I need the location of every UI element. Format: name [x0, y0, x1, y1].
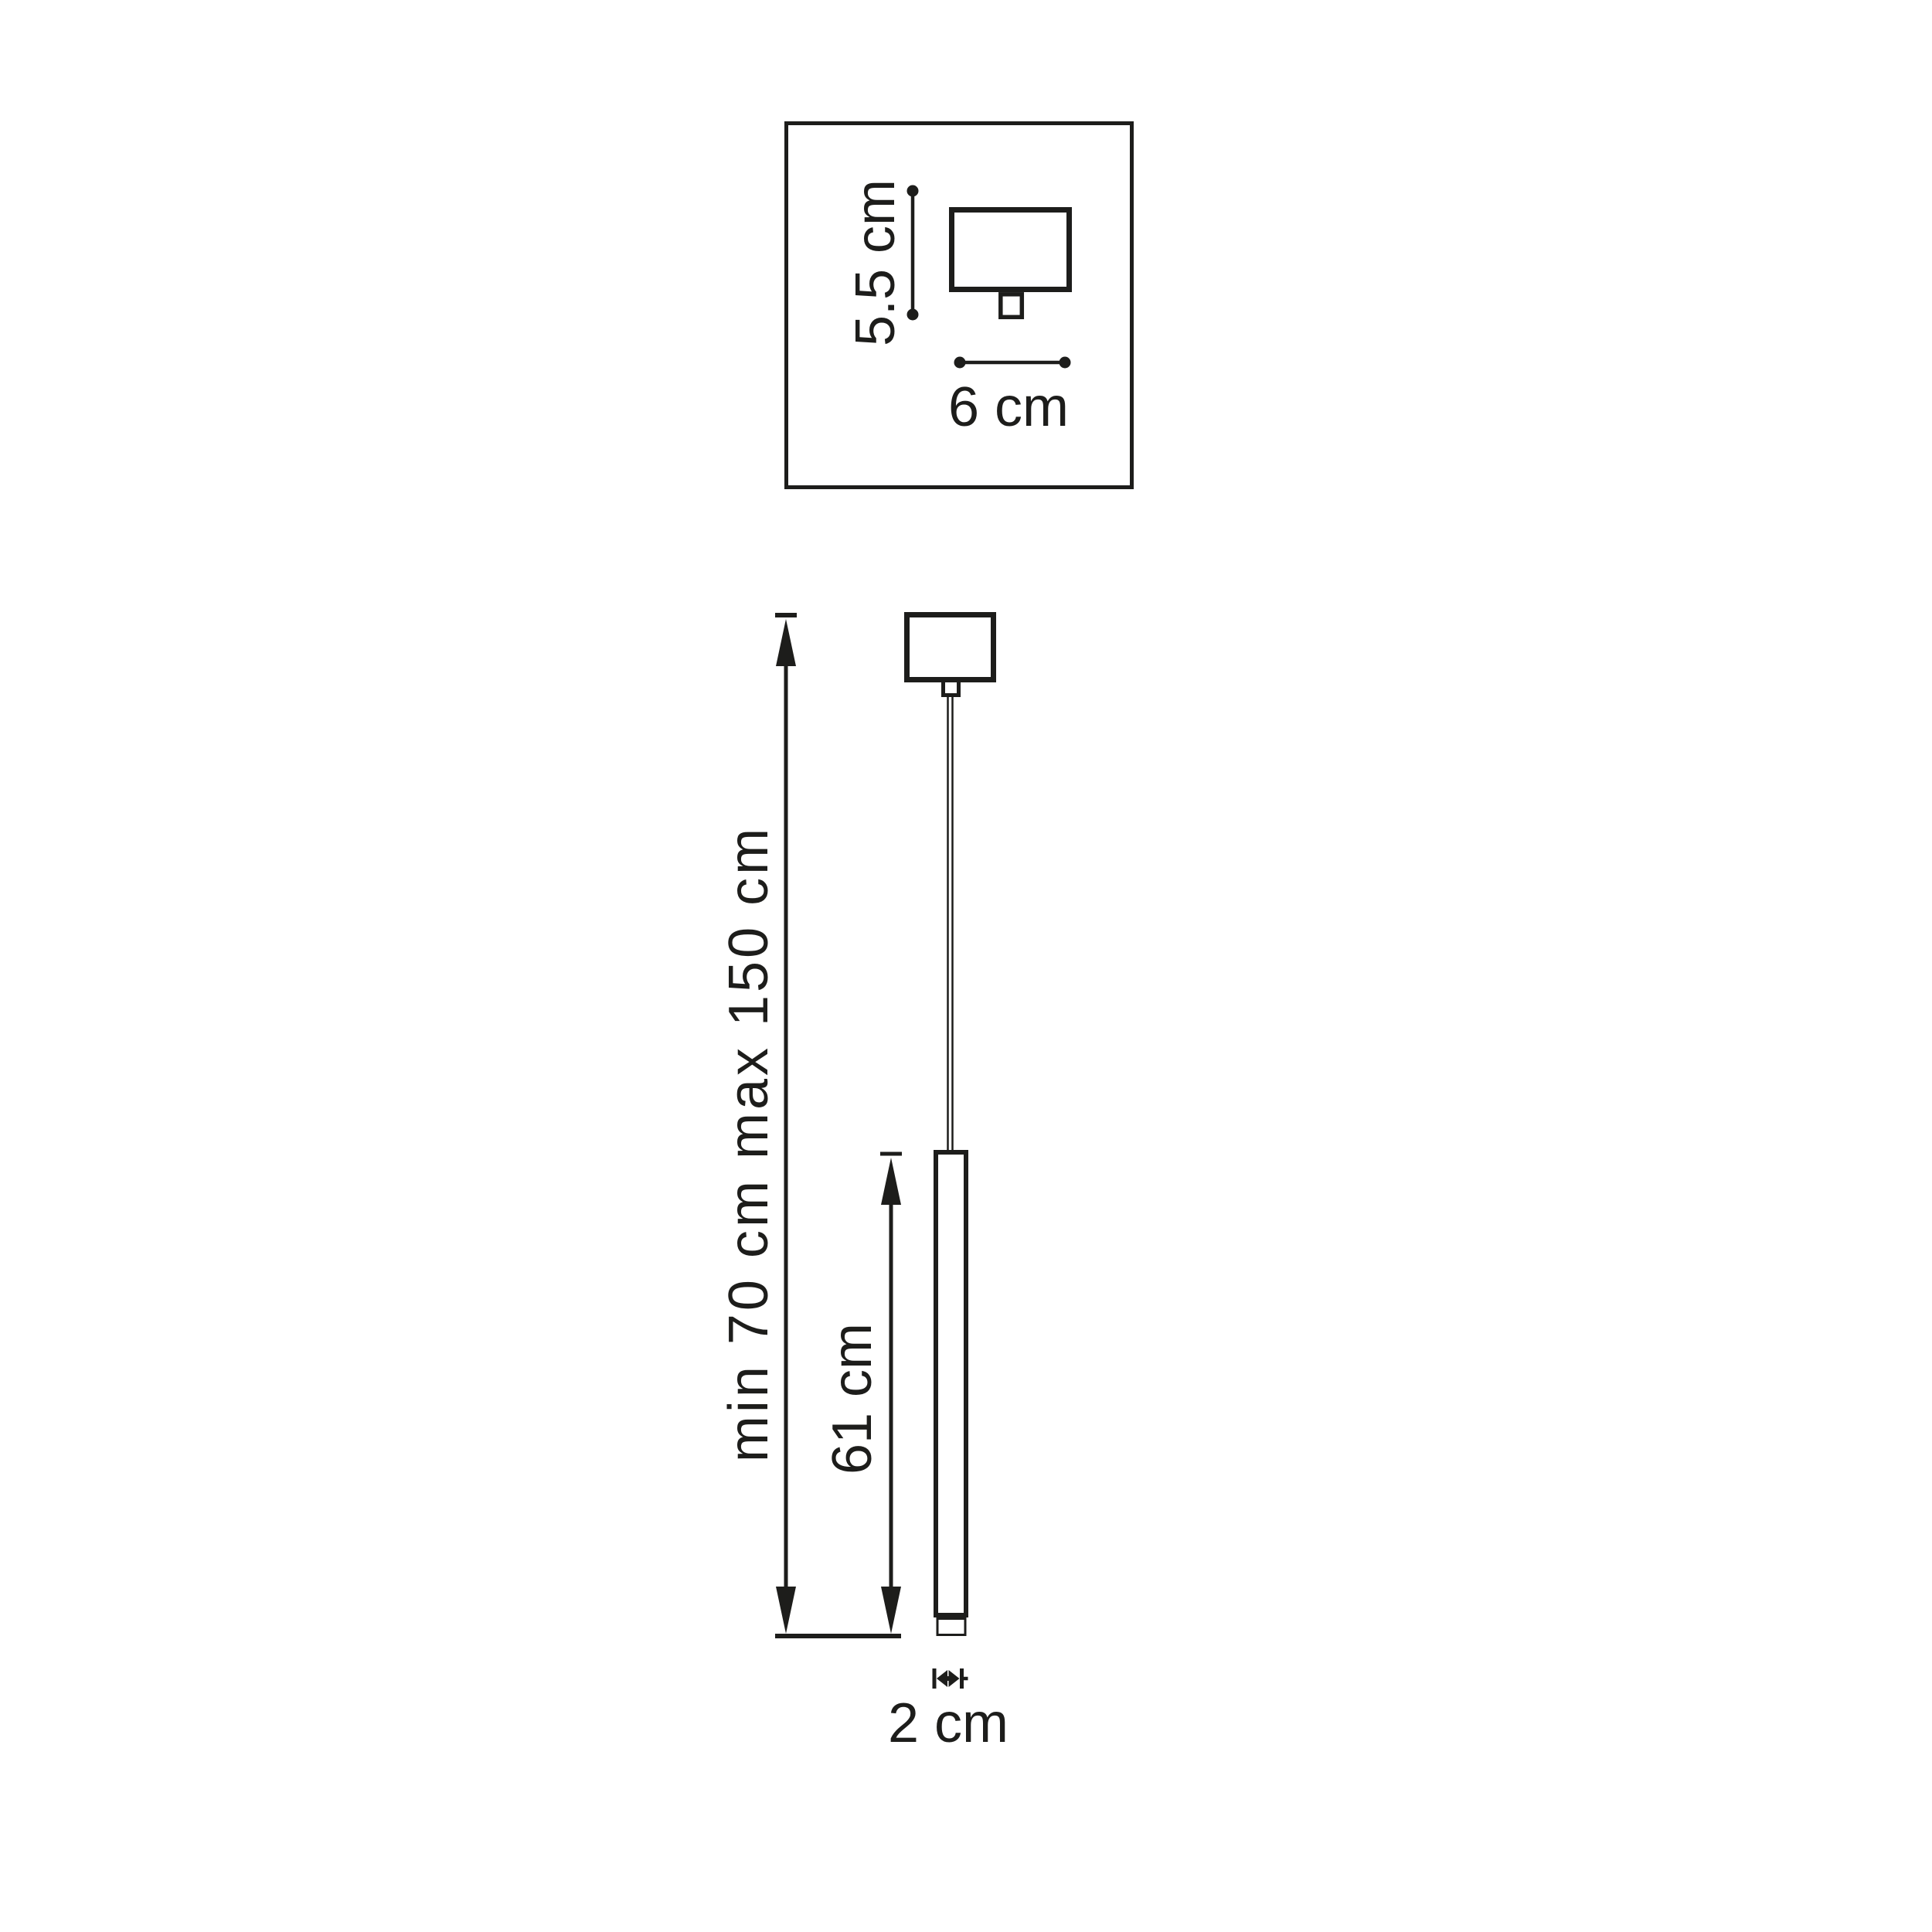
lamp-tube-outline: [936, 1152, 966, 1615]
dimension-endpoint-dot: [907, 185, 919, 197]
lamp-tube-end-cap: [937, 1619, 965, 1635]
tube-length-dimension-label: 61 cm: [821, 1323, 883, 1475]
dimension-endpoint-dot: [954, 357, 966, 369]
detail-canopy-outline: [952, 210, 1070, 290]
tube-diameter-dimension-label: 2 cm: [888, 1692, 1009, 1754]
detail-canopy-stem: [1001, 294, 1022, 318]
overall-height-dimension-label: min 70 cm max 150 cm: [718, 825, 780, 1462]
pendant-fixture: [907, 615, 994, 1635]
diameter-arrow-right: [949, 1670, 960, 1687]
detail-width-dimension-label: 6 cm: [948, 376, 1069, 438]
pendant-lamp-dimension-drawing: 5.5 cm 6 cm min 70 cm max 150 cm: [0, 0, 1932, 1932]
canopy-outline: [907, 615, 994, 680]
tube-length-dimension: 61 cm: [821, 1154, 902, 1634]
diameter-arrow-left: [937, 1670, 947, 1687]
overall-height-dimension: min 70 cm max 150 cm: [718, 615, 797, 1634]
suspension-wire: [948, 697, 953, 1152]
dimension-endpoint-dot: [1060, 357, 1071, 369]
dimension-endpoint-dot: [907, 309, 919, 321]
detail-inset: 5.5 cm 6 cm: [787, 124, 1132, 488]
overall-height-arrow-up: [776, 619, 796, 666]
detail-height-dimension: 5.5 cm: [845, 179, 919, 346]
detail-height-dimension-label: 5.5 cm: [845, 179, 906, 346]
tube-length-arrow-down: [881, 1587, 901, 1634]
tube-length-arrow-up: [881, 1158, 901, 1205]
overall-height-arrow-down: [776, 1587, 796, 1634]
canopy-stem: [944, 681, 959, 696]
detail-width-dimension: 6 cm: [948, 357, 1071, 439]
tube-diameter-dimension: 2 cm: [888, 1668, 1009, 1754]
